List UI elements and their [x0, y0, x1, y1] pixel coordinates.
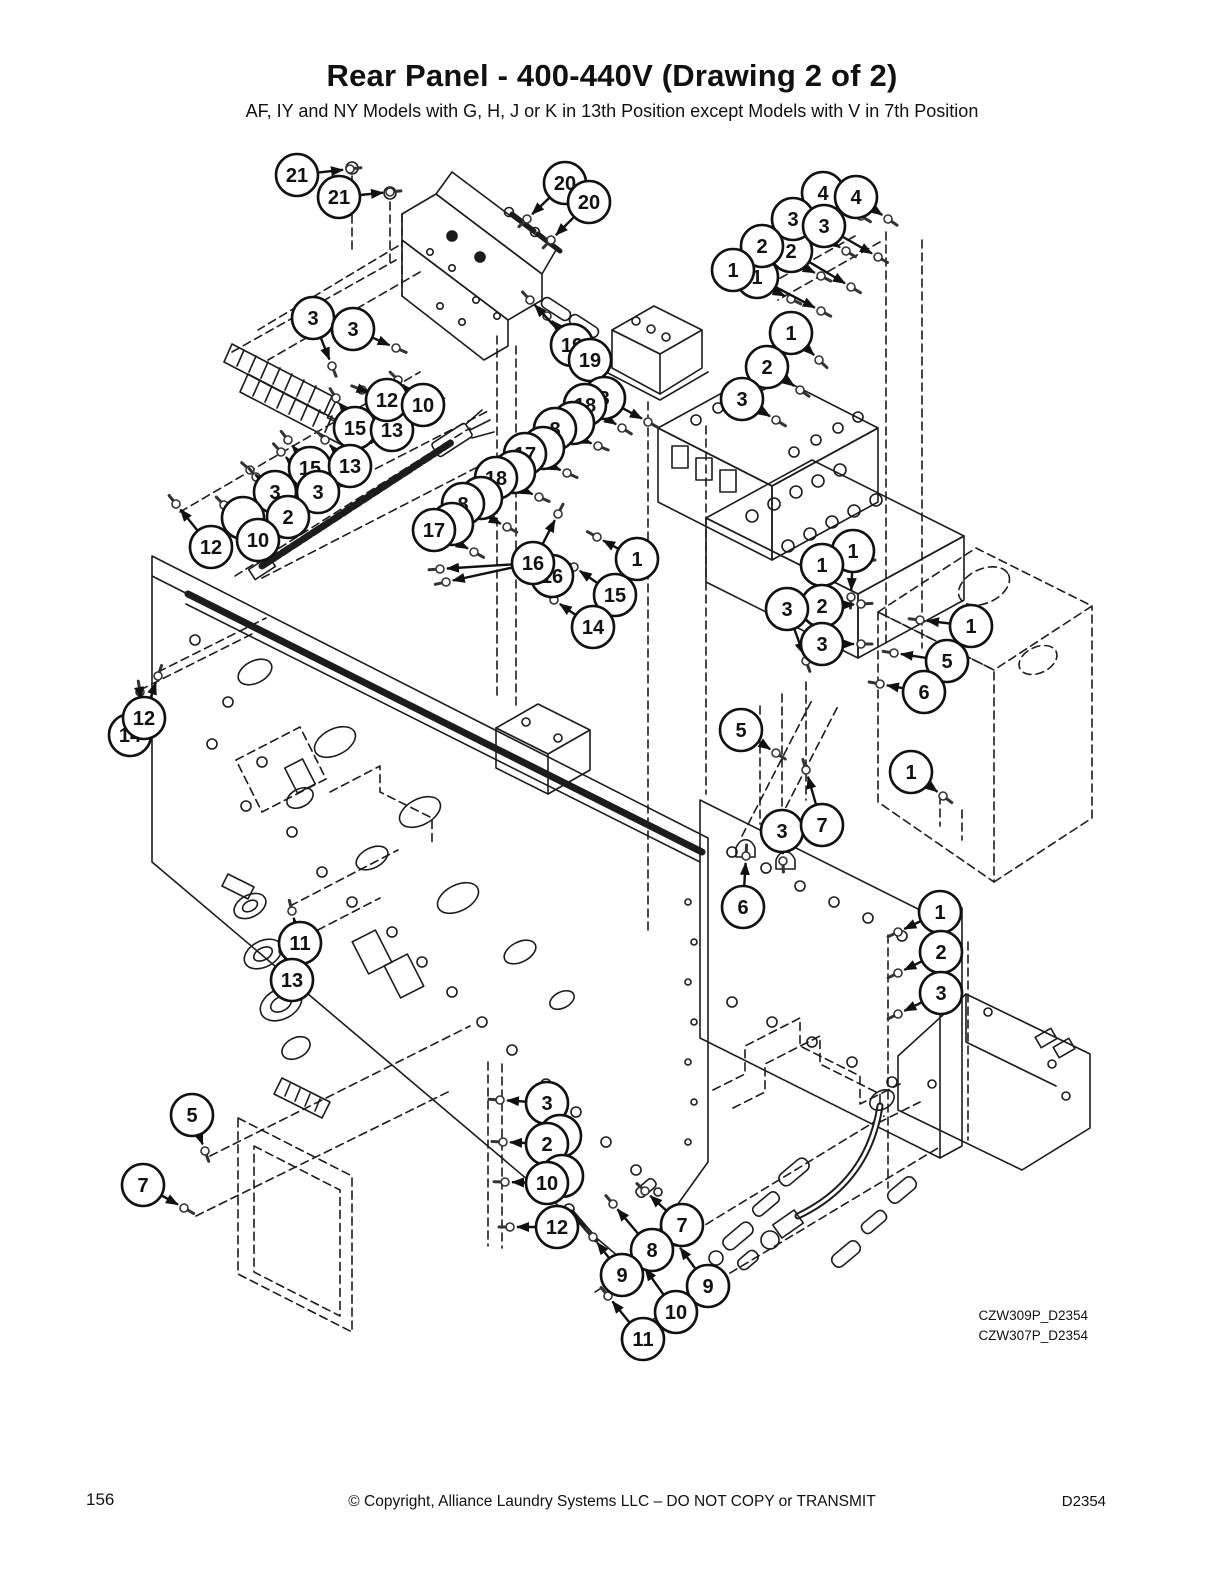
- drawing-references: CZW309P_D2354 CZW307P_D2354: [978, 1306, 1088, 1346]
- callout-arrow: [372, 338, 389, 346]
- callout-arrow: [560, 604, 576, 615]
- fastener-icon: [916, 616, 924, 624]
- callout-number: 3: [307, 308, 318, 330]
- callout-arrow: [510, 1142, 526, 1143]
- callout-number: 20: [578, 192, 600, 214]
- callout-number: 8: [646, 1240, 657, 1262]
- callout-number: 9: [616, 1265, 627, 1287]
- callout-number: 7: [816, 815, 827, 837]
- callout-number: 21: [328, 187, 350, 209]
- fastener-icon: [180, 1204, 188, 1212]
- exploded-view-diagram: 2121202021443321123331513121015133321012…: [0, 0, 1224, 1584]
- callout-arrow: [808, 777, 816, 805]
- fastener-icon: [172, 500, 180, 508]
- callout-balloon: 9: [601, 1254, 643, 1296]
- fastener-icon: [503, 523, 511, 531]
- callout-balloon: 17: [413, 509, 455, 551]
- callout-balloon: 3: [721, 378, 763, 420]
- callout-number: 1: [631, 549, 642, 571]
- callout-number: 3: [347, 319, 358, 341]
- fastener-icon: [817, 307, 825, 315]
- callout-number: 2: [816, 596, 827, 618]
- fastener-icon: [506, 1223, 514, 1231]
- callout-number: 6: [737, 897, 748, 919]
- callout-number: 5: [186, 1105, 197, 1127]
- callout-number: 1: [934, 902, 945, 924]
- drawing-ref: CZW309P_D2354: [978, 1306, 1088, 1326]
- callout-number: 1: [816, 555, 827, 577]
- fastener-icon: [358, 386, 366, 394]
- fastener-icon: [470, 548, 478, 556]
- fastener-icon: [772, 416, 780, 424]
- fastener-icon: [442, 578, 450, 586]
- fastener-icon: [501, 1178, 509, 1186]
- fastener-icon: [779, 857, 787, 865]
- callout-balloon: 2: [920, 931, 962, 973]
- callout-arrow: [507, 1100, 526, 1101]
- callout-number: 15: [344, 418, 366, 440]
- fastener-icon: [436, 565, 444, 573]
- fastener-icon: [136, 688, 144, 696]
- fastener-icon: [894, 969, 902, 977]
- callout-number: 2: [761, 357, 772, 379]
- callout-number: 6: [918, 682, 929, 704]
- fastener-icon: [884, 215, 892, 223]
- callout-balloon: 13: [271, 959, 313, 1001]
- fastener-icon: [609, 1200, 617, 1208]
- copyright-notice: © Copyright, Alliance Laundry Systems LL…: [0, 1493, 1224, 1511]
- callout-number: 11: [289, 933, 310, 955]
- callout-number: 5: [735, 720, 746, 742]
- document-number: D2354: [1062, 1493, 1106, 1510]
- fastener-icon: [154, 672, 162, 680]
- callout-balloon: 5: [171, 1094, 213, 1136]
- fastener-icon: [641, 1187, 649, 1195]
- callout-number: 1: [847, 541, 858, 563]
- callout-arrow: [904, 921, 921, 929]
- callout-balloon: 10: [526, 1162, 568, 1204]
- callout-number: 7: [137, 1175, 148, 1197]
- lower-right-bracket: [898, 994, 1090, 1170]
- callout-number: 17: [423, 520, 445, 542]
- fastener-icon: [593, 533, 601, 541]
- callout-arrow: [618, 1209, 639, 1234]
- callout-number: 1: [965, 616, 976, 638]
- callout-number: 3: [816, 634, 827, 656]
- callout-balloon: 21: [318, 176, 360, 218]
- callout-number: 11: [632, 1329, 653, 1351]
- fastener-icon: [328, 362, 336, 370]
- mounting-rail: [186, 594, 702, 862]
- fastener-icon: [796, 386, 804, 394]
- callout-arrow: [556, 217, 574, 235]
- callout-balloon: 5: [720, 709, 762, 751]
- callout-arrow: [597, 1243, 609, 1259]
- callout-arrow: [321, 338, 330, 360]
- callout-balloon: 11: [622, 1318, 664, 1360]
- bottom-left-connector: [274, 1078, 330, 1118]
- callout-number: 1: [727, 260, 738, 282]
- fastener-icon: [939, 792, 947, 800]
- callout-number: 10: [665, 1302, 687, 1324]
- callout-number: 13: [339, 456, 361, 478]
- callout-number: 15: [604, 585, 626, 607]
- fastener-icon: [847, 593, 855, 601]
- callout-number: 13: [381, 420, 403, 442]
- callout-arrow: [784, 379, 794, 386]
- callout-number: 10: [412, 395, 434, 417]
- callout-number: 1: [785, 323, 796, 345]
- fastener-icon: [589, 1233, 597, 1241]
- fastener-icon: [842, 247, 850, 255]
- fastener-icon: [802, 766, 810, 774]
- fastener-icon: [815, 356, 823, 364]
- callout-arrow: [680, 1248, 696, 1269]
- callout-number: 2: [541, 1134, 552, 1156]
- callout-arrow: [904, 1002, 922, 1011]
- callout-number: 3: [787, 209, 798, 231]
- callout-balloon: 1: [801, 544, 843, 586]
- callout-number: 3: [935, 983, 946, 1005]
- fastener-icon: [535, 493, 543, 501]
- connector-chain: [564, 1086, 919, 1272]
- callout-arrow: [873, 209, 882, 215]
- control-box: [878, 548, 1092, 882]
- callout-balloon: 10: [237, 519, 279, 561]
- callout-arrow: [603, 540, 619, 549]
- fastener-icon: [894, 928, 902, 936]
- callout-balloon: 3: [803, 205, 845, 247]
- callout-number: 12: [546, 1217, 568, 1239]
- callout-arrow: [622, 408, 642, 419]
- callout-number: 12: [200, 537, 222, 559]
- fastener-icon: [346, 165, 354, 173]
- callout-arrow: [318, 170, 343, 173]
- callout-arrow: [180, 509, 197, 530]
- fastener-icon: [284, 436, 292, 444]
- fastener-icon: [288, 907, 296, 915]
- bottom-left-panels: [238, 1118, 352, 1332]
- fastener-icon: [499, 1138, 507, 1146]
- fastener-icon: [526, 296, 534, 304]
- fastener-icon: [857, 640, 865, 648]
- fastener-icon: [618, 424, 626, 432]
- callout-arrow: [843, 604, 854, 605]
- callout-balloon: 19: [569, 339, 611, 381]
- callout-number: 2: [935, 942, 946, 964]
- callout-balloon: 1: [890, 751, 932, 793]
- callout-number: 10: [247, 530, 269, 552]
- fastener-icon: [594, 442, 602, 450]
- callout-arrow: [612, 1301, 629, 1322]
- fastener-icon: [857, 600, 865, 608]
- callout-arrow: [927, 621, 950, 624]
- fastener-icon: [742, 852, 750, 860]
- fastener-icon: [890, 649, 898, 657]
- fastener-icon: [277, 448, 285, 456]
- callout-number: 2: [282, 507, 293, 529]
- fastener-icon: [644, 418, 652, 426]
- callout-balloon: 3: [801, 623, 843, 665]
- callout-number: 5: [941, 651, 952, 673]
- callout-arrow: [199, 1135, 203, 1145]
- callout-balloon: 1: [616, 538, 658, 580]
- callout-arrow: [650, 1196, 666, 1211]
- callout-balloon: 3: [766, 588, 808, 630]
- callout-balloon: 7: [122, 1164, 164, 1206]
- callout-number: 19: [579, 350, 601, 372]
- fastener-icon: [894, 1010, 902, 1018]
- fastener-icon: [847, 283, 855, 291]
- fastener-icon: [386, 188, 394, 196]
- callout-arrow: [453, 568, 513, 581]
- callout-balloon: 12: [190, 526, 232, 568]
- callout-arrow: [360, 193, 383, 195]
- callout-arrow: [447, 564, 512, 568]
- fastener-icon: [874, 253, 882, 261]
- callout-number: 3: [818, 216, 829, 238]
- callout-arrow: [744, 863, 745, 886]
- callout-number: 3: [312, 482, 323, 504]
- fastener-icon: [547, 236, 555, 244]
- callout-balloon: 6: [722, 886, 764, 928]
- callout-number: 2: [756, 236, 767, 258]
- callout-balloon: 20: [568, 181, 610, 223]
- rear-panel: [152, 556, 708, 1268]
- callout-arrow: [543, 520, 555, 544]
- callout-arrow: [645, 1269, 664, 1295]
- drawing-ref: CZW307P_D2354: [978, 1326, 1088, 1346]
- callout-number: 14: [582, 617, 605, 639]
- callout-balloon: 3: [292, 297, 334, 339]
- callout-arrow: [851, 572, 852, 590]
- callout-balloon: 12: [123, 697, 165, 739]
- callout-number: 4: [850, 187, 862, 209]
- fastener-icon: [321, 436, 329, 444]
- fastener-icon: [392, 344, 400, 352]
- callout-number: 3: [776, 821, 787, 843]
- callout-balloon: 12: [536, 1206, 578, 1248]
- callout-arrow: [760, 410, 770, 416]
- callout-arrow: [580, 571, 598, 583]
- callout-balloon: 1: [712, 249, 754, 291]
- fastener-icon: [554, 510, 562, 518]
- fastener-icon: [772, 749, 780, 757]
- manual-page: Rear Panel - 400-440V (Drawing 2 of 2) A…: [0, 0, 1224, 1584]
- callout-number: 2: [785, 241, 796, 263]
- callout-balloon: 4: [835, 176, 877, 218]
- callout-balloon: 3: [761, 810, 803, 852]
- fastener-icon: [496, 1096, 504, 1104]
- callout-number: 12: [376, 390, 398, 412]
- fastener-icon: [201, 1147, 209, 1155]
- callout-arrow: [901, 654, 926, 658]
- callout-number: 7: [676, 1215, 687, 1237]
- callout-balloon: 1: [919, 891, 961, 933]
- fastener-icon: [523, 215, 531, 223]
- callout-arrow: [806, 348, 814, 356]
- callout-balloon: 7: [801, 804, 843, 846]
- callout-arrow: [161, 1195, 178, 1204]
- callout-balloon: 1: [950, 605, 992, 647]
- callout-number: 21: [286, 165, 308, 187]
- callout-balloon: 3: [920, 972, 962, 1014]
- callout-arrow: [887, 685, 903, 688]
- callout-balloon: 11: [279, 922, 321, 964]
- fastener-icon: [817, 272, 825, 280]
- fastener-icon: [876, 680, 884, 688]
- callout-arrow: [532, 197, 550, 214]
- callout-number: 10: [536, 1173, 558, 1195]
- fastener-icon: [563, 469, 571, 477]
- callout-number: 3: [541, 1093, 552, 1115]
- callout-balloon: 10: [402, 384, 444, 426]
- callout-number: 3: [736, 389, 747, 411]
- callout-number: 16: [522, 553, 544, 575]
- callout-balloon: 16: [512, 542, 554, 584]
- center-transformer: [496, 704, 590, 794]
- callout-number: 9: [702, 1276, 713, 1298]
- callout-arrow: [904, 961, 922, 970]
- callout-balloon: 14: [572, 606, 614, 648]
- callout-number: 4: [817, 183, 829, 205]
- callout-balloon: 21: [276, 154, 318, 196]
- callout-balloon: 6: [903, 671, 945, 713]
- callout-balloon: 3: [332, 308, 374, 350]
- callout-number: 1: [905, 762, 916, 784]
- callout-number: 12: [133, 708, 155, 730]
- callout-number: 3: [781, 599, 792, 621]
- callout-arrow: [928, 785, 938, 792]
- callout-number: 13: [281, 970, 303, 992]
- fastener-icon: [332, 394, 340, 402]
